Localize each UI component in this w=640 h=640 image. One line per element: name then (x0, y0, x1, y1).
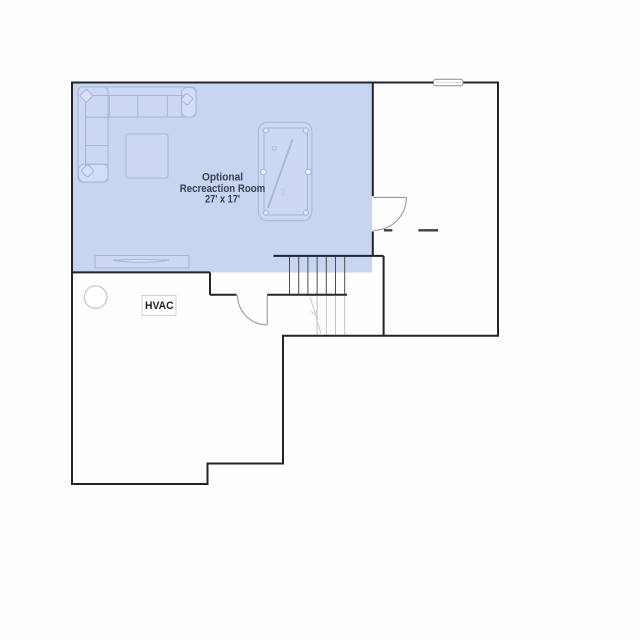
svg-text:Optional: Optional (202, 172, 243, 184)
svg-text:27' x 17': 27' x 17' (205, 194, 240, 206)
svg-text:HVAC: HVAC (145, 300, 174, 312)
